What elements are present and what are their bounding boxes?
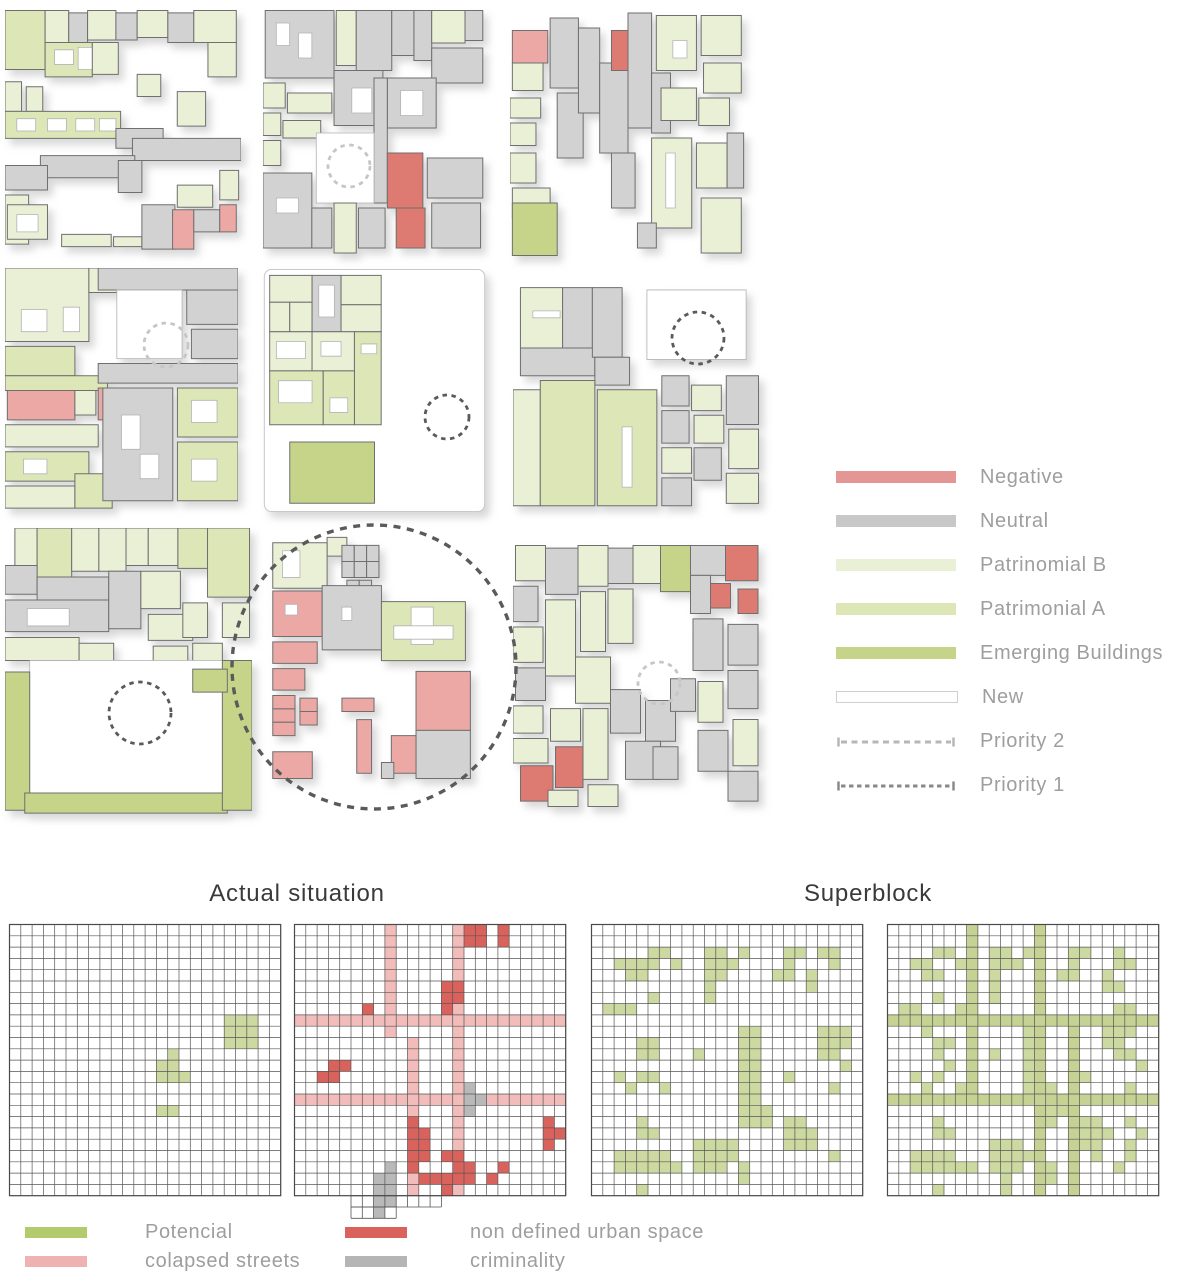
city-block-map-d	[5, 268, 238, 513]
legend-item-new: New	[836, 691, 1163, 703]
grid-legend-label-potencial: Potencial	[145, 1221, 233, 1244]
grid-legend-label-colapsed-streets: colapsed streets	[145, 1250, 300, 1273]
grid-legend-swatch-criminality	[345, 1256, 407, 1267]
legend-label-priority-2: Priority 2	[980, 730, 1065, 753]
legend-swatch-neutral	[836, 515, 956, 527]
legend-label-priority-1: Priority 1	[980, 774, 1065, 797]
legend-swatch-priority1	[836, 779, 956, 791]
section-title-superblock: Superblock	[804, 880, 932, 908]
grid-legend-swatch-potencial	[25, 1227, 87, 1238]
legend-swatch-new	[836, 691, 958, 703]
urban-analysis-diagram: NegativeNeutralPatrinomial BPatrimonial …	[0, 0, 1187, 1280]
legend-label-patrimonial-a: Patrimonial A	[980, 598, 1106, 621]
legend-label-emerging-buildings: Emerging Buildings	[980, 642, 1163, 665]
legend-item-patrimonial-a: Patrimonial A	[836, 603, 1163, 615]
grid-superblock-plan	[886, 923, 1161, 1199]
city-block-map-a	[5, 8, 241, 254]
map-legend: NegativeNeutralPatrinomial BPatrimonial …	[836, 471, 1163, 791]
grid-legend-label-non-defined-urban-space: non defined urban space	[470, 1221, 704, 1244]
city-block-map-g	[5, 528, 252, 816]
legend-label-negative: Negative	[980, 466, 1064, 489]
legend-item-patrinomial-b: Patrinomial B	[836, 559, 1163, 571]
section-title-actual-situation: Actual situation	[209, 880, 385, 908]
legend-label-new: New	[982, 686, 1024, 709]
dashed-line-swatch	[836, 780, 956, 792]
legend-item-priority-1: Priority 1	[836, 779, 1163, 791]
grid-legend-swatch-non_defined	[345, 1227, 407, 1238]
legend-swatch-patrimonial_b	[836, 559, 956, 571]
city-block-map-c	[510, 8, 746, 258]
grid-actual-problems	[293, 923, 568, 1221]
legend-item-negative: Negative	[836, 471, 1163, 483]
city-block-map-i	[513, 540, 763, 812]
grid-legend-label-criminality: criminality	[470, 1250, 566, 1273]
legend-item-emerging-buildings: Emerging Buildings	[836, 647, 1163, 659]
legend-swatch-patrimonial_a	[836, 603, 956, 615]
grid-superblock-potential	[590, 923, 865, 1199]
legend-item-neutral: Neutral	[836, 515, 1163, 527]
city-block-map-b	[263, 8, 485, 258]
legend-label-neutral: Neutral	[980, 510, 1049, 533]
grid-legend-swatch-colapsed	[25, 1256, 87, 1267]
legend-item-priority-2: Priority 2	[836, 735, 1163, 747]
legend-swatch-negative	[836, 471, 956, 483]
legend-label-patrinomial-b: Patrinomial B	[980, 554, 1107, 577]
city-block-map-e	[263, 268, 486, 513]
grid-actual-current	[8, 923, 283, 1199]
city-block-map-f	[513, 283, 761, 515]
city-block-map-h	[253, 532, 500, 800]
legend-swatch-emerging	[836, 647, 956, 659]
dashed-line-swatch	[836, 736, 956, 748]
legend-swatch-priority2	[836, 735, 956, 747]
